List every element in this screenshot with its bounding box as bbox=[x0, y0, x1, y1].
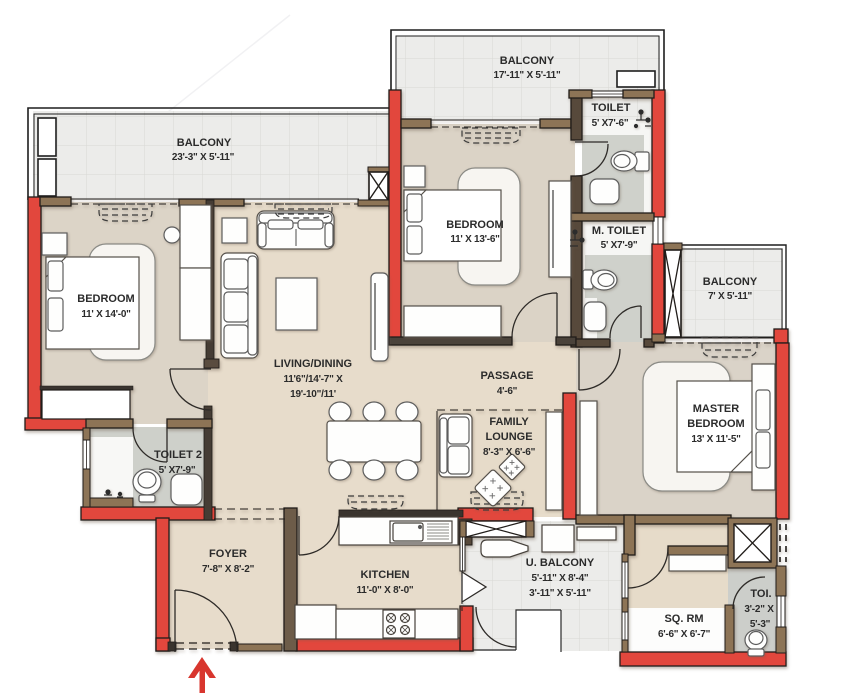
svg-text:3'-2" X: 3'-2" X bbox=[744, 604, 774, 615]
svg-text:17'-11" X 5'-11": 17'-11" X 5'-11" bbox=[494, 70, 561, 81]
svg-text:13' X 11'-5": 13' X 11'-5" bbox=[691, 434, 741, 445]
svg-text:11' X 13'-6": 11' X 13'-6" bbox=[450, 234, 500, 245]
svg-text:5'-11" X 8'-4": 5'-11" X 8'-4" bbox=[532, 573, 589, 584]
svg-text:11'-0" X 8'-0": 11'-0" X 8'-0" bbox=[357, 585, 414, 596]
svg-text:BEDROOM: BEDROOM bbox=[687, 418, 744, 430]
svg-text:5'-3": 5'-3" bbox=[750, 619, 771, 630]
svg-text:PASSAGE: PASSAGE bbox=[481, 370, 534, 382]
svg-text:BEDROOM: BEDROOM bbox=[77, 293, 134, 305]
svg-text:M. TOILET: M. TOILET bbox=[592, 225, 646, 237]
svg-text:BALCONY: BALCONY bbox=[703, 276, 758, 288]
svg-text:5' X7'-9": 5' X7'-9" bbox=[159, 465, 196, 476]
svg-text:5' X7'-6": 5' X7'-6" bbox=[592, 118, 629, 129]
svg-text:TOILET 2: TOILET 2 bbox=[154, 449, 202, 461]
svg-text:4'-6": 4'-6" bbox=[497, 386, 518, 397]
svg-text:3'-11" X 5'-11": 3'-11" X 5'-11" bbox=[529, 588, 591, 599]
svg-text:BALCONY: BALCONY bbox=[500, 55, 555, 67]
svg-text:FAMILY: FAMILY bbox=[489, 416, 529, 428]
svg-text:LIVING/DINING: LIVING/DINING bbox=[274, 358, 352, 370]
svg-text:8'-3" X 6'-6": 8'-3" X 6'-6" bbox=[483, 447, 536, 458]
svg-text:TOILET: TOILET bbox=[592, 102, 631, 114]
svg-text:MASTER: MASTER bbox=[693, 403, 740, 415]
svg-text:LOUNGE: LOUNGE bbox=[485, 431, 532, 443]
svg-text:BALCONY: BALCONY bbox=[177, 137, 232, 149]
svg-text:TOI.: TOI. bbox=[750, 588, 771, 600]
svg-text:7'-8" X 8'-2": 7'-8" X 8'-2" bbox=[202, 564, 255, 575]
svg-text:SQ. RM: SQ. RM bbox=[664, 613, 703, 625]
svg-text:7' X 5'-11": 7' X 5'-11" bbox=[708, 291, 753, 302]
svg-text:6'-6" X 6'-7": 6'-6" X 6'-7" bbox=[658, 629, 711, 640]
svg-text:19'-10"/11': 19'-10"/11' bbox=[290, 389, 336, 400]
svg-text:5' X7'-9": 5' X7'-9" bbox=[601, 240, 638, 251]
svg-text:KITCHEN: KITCHEN bbox=[361, 569, 410, 581]
svg-text:11' X 14'-0": 11' X 14'-0" bbox=[81, 309, 131, 320]
svg-text:U. BALCONY: U. BALCONY bbox=[526, 557, 595, 569]
svg-text:23'-3" X 5'-11": 23'-3" X 5'-11" bbox=[172, 152, 235, 163]
svg-text:11'6"/14'-7" X: 11'6"/14'-7" X bbox=[283, 374, 343, 385]
svg-text:FOYER: FOYER bbox=[209, 548, 247, 560]
svg-text:BEDROOM: BEDROOM bbox=[446, 219, 503, 231]
